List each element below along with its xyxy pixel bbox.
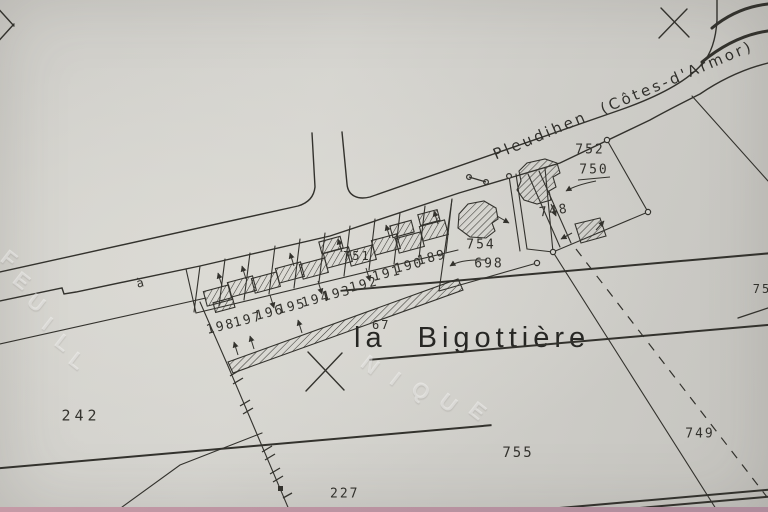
parcel-label-227: 227: [330, 488, 768, 501]
parcel-label-242: 242: [61, 409, 100, 424]
parcel-label-751: 751: [343, 250, 768, 262]
parcel-label-750: 750: [579, 164, 608, 177]
photo-edge-strip: [0, 507, 768, 512]
dashed-boundary: [576, 249, 767, 497]
cadastral-map: la Bigottière Pleudihen (Côtes-d'Armor) …: [0, 0, 768, 512]
survey-cross-icon: [659, 8, 689, 38]
parcel-label-63: 63: [0, 452, 489, 466]
building-750: [575, 218, 606, 243]
parcel-label-752: 752: [575, 144, 604, 157]
parcel-label-748: 748: [538, 203, 569, 220]
survey-cross-icon: [306, 352, 344, 391]
building-754: [458, 201, 498, 238]
boundary-tick-marks: [228, 366, 292, 512]
parcel-label-75x: 75: [753, 283, 768, 295]
parcel-label-755: 755: [502, 446, 533, 460]
parcel-boundaries: [0, 96, 768, 512]
parcel-label-67x: 67: [372, 319, 768, 331]
building-748: [517, 159, 560, 204]
parcel-label-749: 749: [685, 428, 714, 441]
map-drawing-layer: la Bigottière Pleudihen (Côtes-d'Armor) …: [0, 0, 768, 512]
survey-cross-icon: [0, 4, 14, 46]
